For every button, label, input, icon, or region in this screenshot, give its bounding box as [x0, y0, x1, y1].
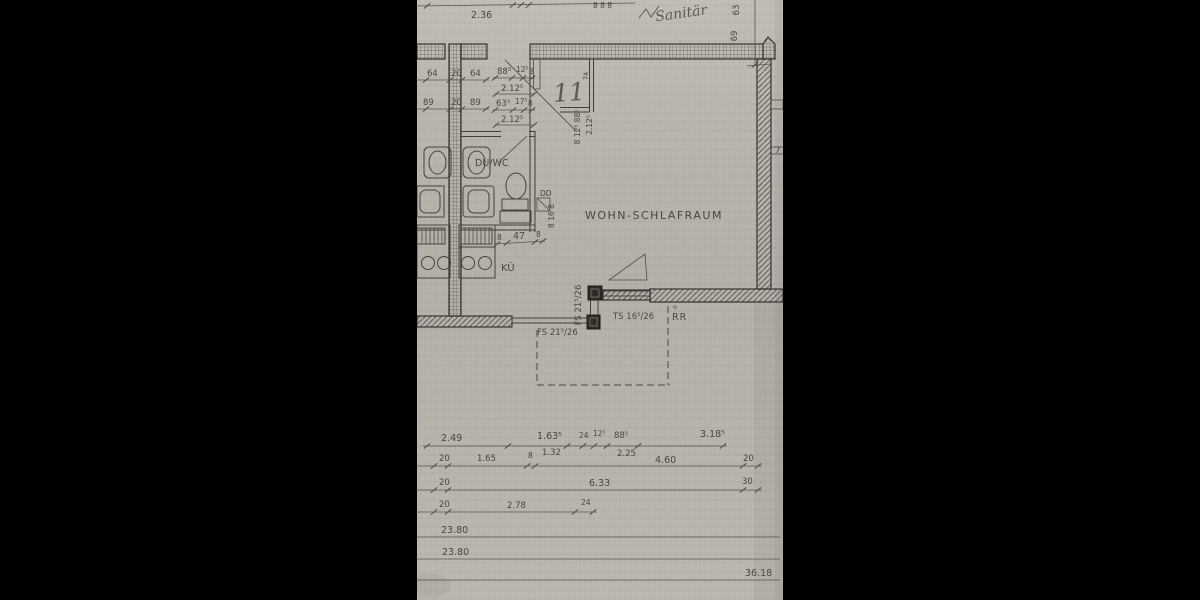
paper-grain [417, 0, 783, 600]
letterbox-left [0, 0, 417, 600]
floorplan-drawing: WOHN-SCHLAFRAUM DU/WC KÜ Sanitär 11 74 D… [417, 0, 783, 600]
screenshot-root: WOHN-SCHLAFRAUM DU/WC KÜ Sanitär 11 74 D… [0, 0, 1200, 600]
scanned-floorplan: WOHN-SCHLAFRAUM DU/WC KÜ Sanitär 11 74 D… [417, 0, 783, 600]
letterbox-right [783, 0, 1200, 600]
